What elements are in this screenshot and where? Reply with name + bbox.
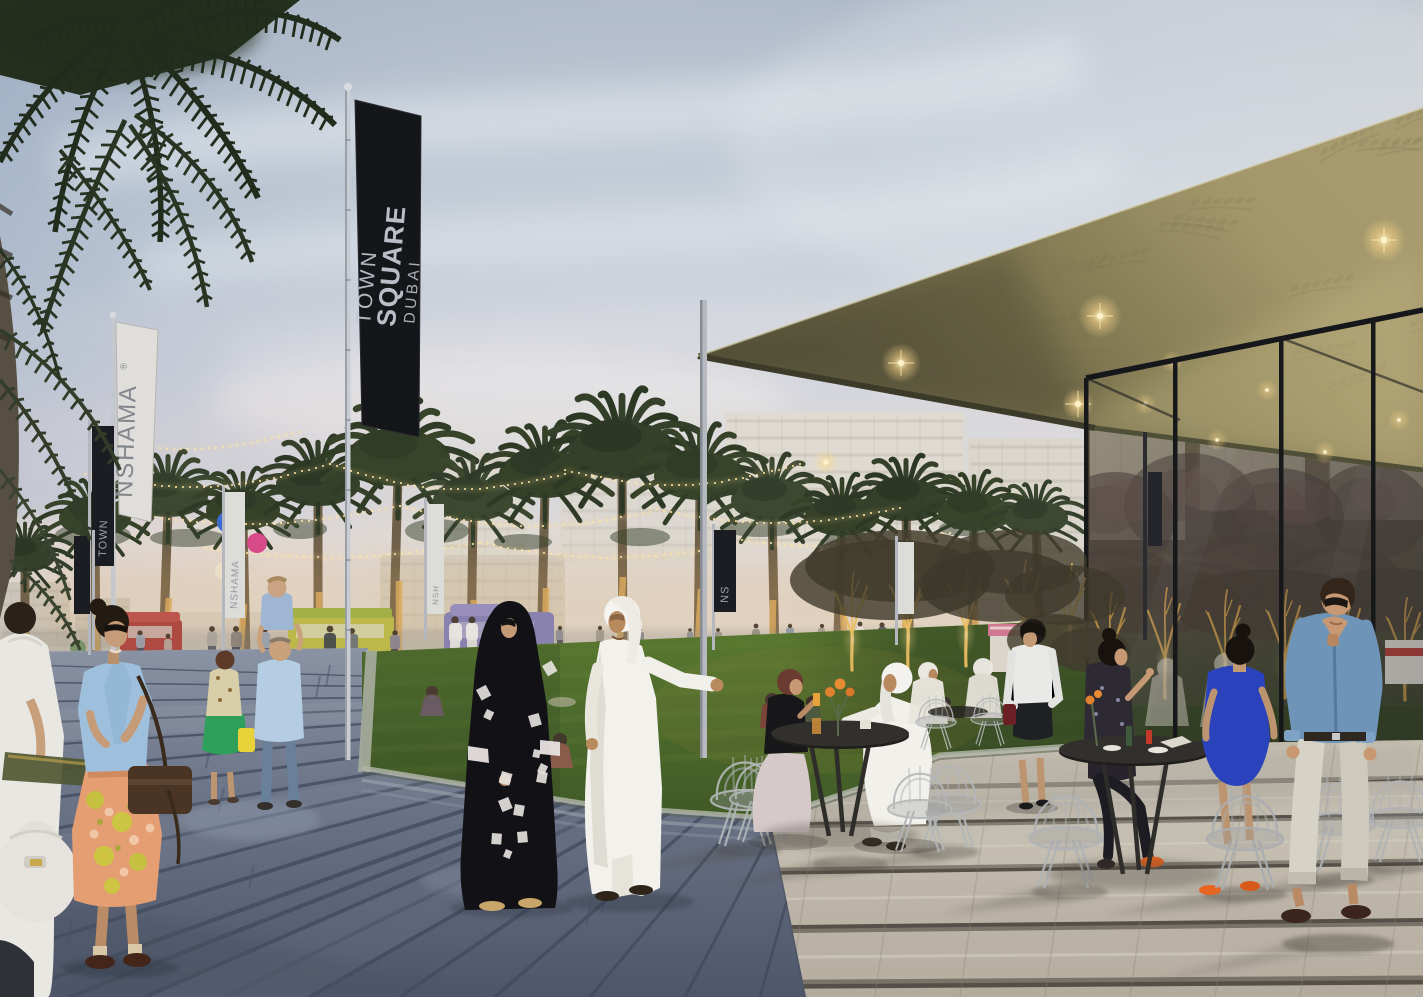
svg-text:NSH: NSH xyxy=(431,585,441,605)
svg-text:NSHAMA: NSHAMA xyxy=(111,384,142,498)
svg-text:NSHAMA: NSHAMA xyxy=(229,560,242,609)
svg-text:®: ® xyxy=(118,362,128,369)
svg-text:TOWN: TOWN xyxy=(97,519,110,557)
svg-text:NS: NS xyxy=(719,585,732,603)
